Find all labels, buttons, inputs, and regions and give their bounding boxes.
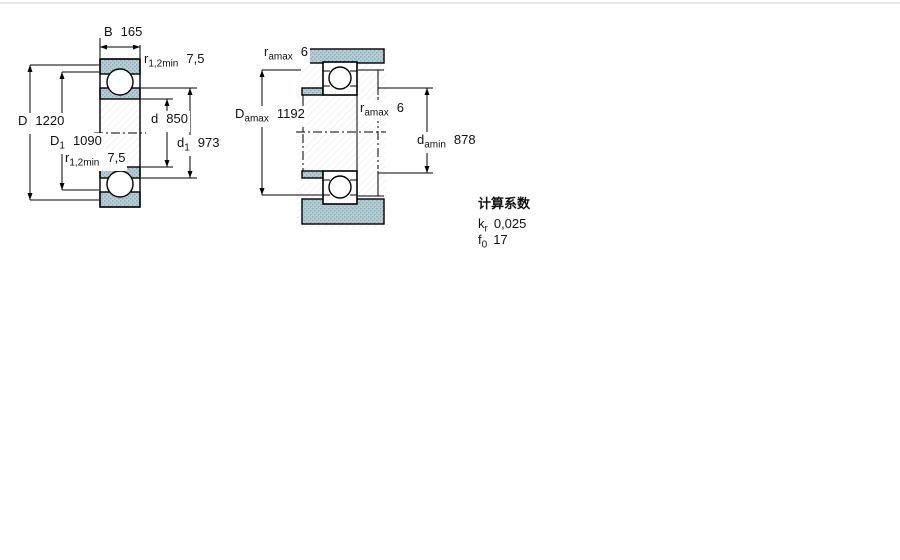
dim-subscript: 1	[184, 143, 190, 154]
dim-label-ramax-mid: ramax6	[358, 100, 406, 121]
dim-label-ramax-top: ramax6	[262, 44, 310, 65]
right-abutment-section	[296, 48, 386, 228]
ball-bottom-right-figure	[329, 176, 351, 198]
factor-subscript: 0	[482, 240, 488, 251]
dim-label-r12min-bottom: r1,2min7,5	[63, 150, 127, 171]
dim-symbol: d	[151, 111, 158, 126]
diagram-canvas	[0, 0, 900, 560]
dim-value: 7,5	[107, 150, 125, 165]
dim-symbol: B	[104, 24, 113, 39]
calc-factors-heading: 计算系数	[478, 193, 530, 212]
dim-symbol: D	[18, 113, 27, 128]
dim-value: 973	[198, 135, 220, 150]
dim-label-D: D1220	[16, 113, 66, 134]
dim-subscript: 1,2min	[69, 158, 99, 169]
dim-value: 165	[121, 24, 143, 39]
dim-value: 7,5	[186, 51, 204, 66]
calc-factor-f0: f017	[476, 232, 510, 253]
dim-label-Damax: Damax1192	[233, 106, 307, 127]
dim-symbol: D	[50, 133, 59, 148]
dim-label-B: B165	[102, 24, 144, 45]
dim-value: 1220	[35, 113, 64, 128]
dim-symbol: D	[235, 106, 244, 121]
factor-value: 17	[493, 232, 507, 247]
bearing-dimension-diagram: B165 r1,2min7,5 D1220 D11090 r1,2min7,5 …	[0, 0, 900, 560]
dim-value: 6	[397, 100, 404, 115]
shaft-shoulder-top	[302, 88, 323, 95]
dim-value: 6	[301, 44, 308, 59]
dim-subscript: amin	[424, 140, 446, 151]
ball-top	[107, 69, 133, 95]
dim-subscript: 1,2min	[148, 59, 178, 70]
dim-value: 1192	[277, 106, 305, 121]
dim-label-d: d850	[149, 111, 190, 132]
dim-value: 850	[166, 111, 188, 126]
ball-bottom	[107, 171, 133, 197]
housing-top	[302, 49, 384, 63]
dim-label-damin: damin878	[415, 132, 478, 153]
dim-label-d1: d1973	[175, 135, 222, 156]
ball-top-right-figure	[329, 67, 351, 89]
dim-value: 878	[454, 132, 476, 147]
dim-subscript: amax	[268, 52, 292, 63]
dim-value: 1090	[73, 133, 102, 148]
dim-subscript: amax	[364, 108, 388, 119]
factor-value: 0,025	[494, 216, 527, 231]
shaft-shoulder-bottom	[302, 171, 323, 178]
dim-subscript: amax	[244, 114, 268, 125]
dim-label-r12min-top: r1,2min7,5	[142, 51, 206, 72]
